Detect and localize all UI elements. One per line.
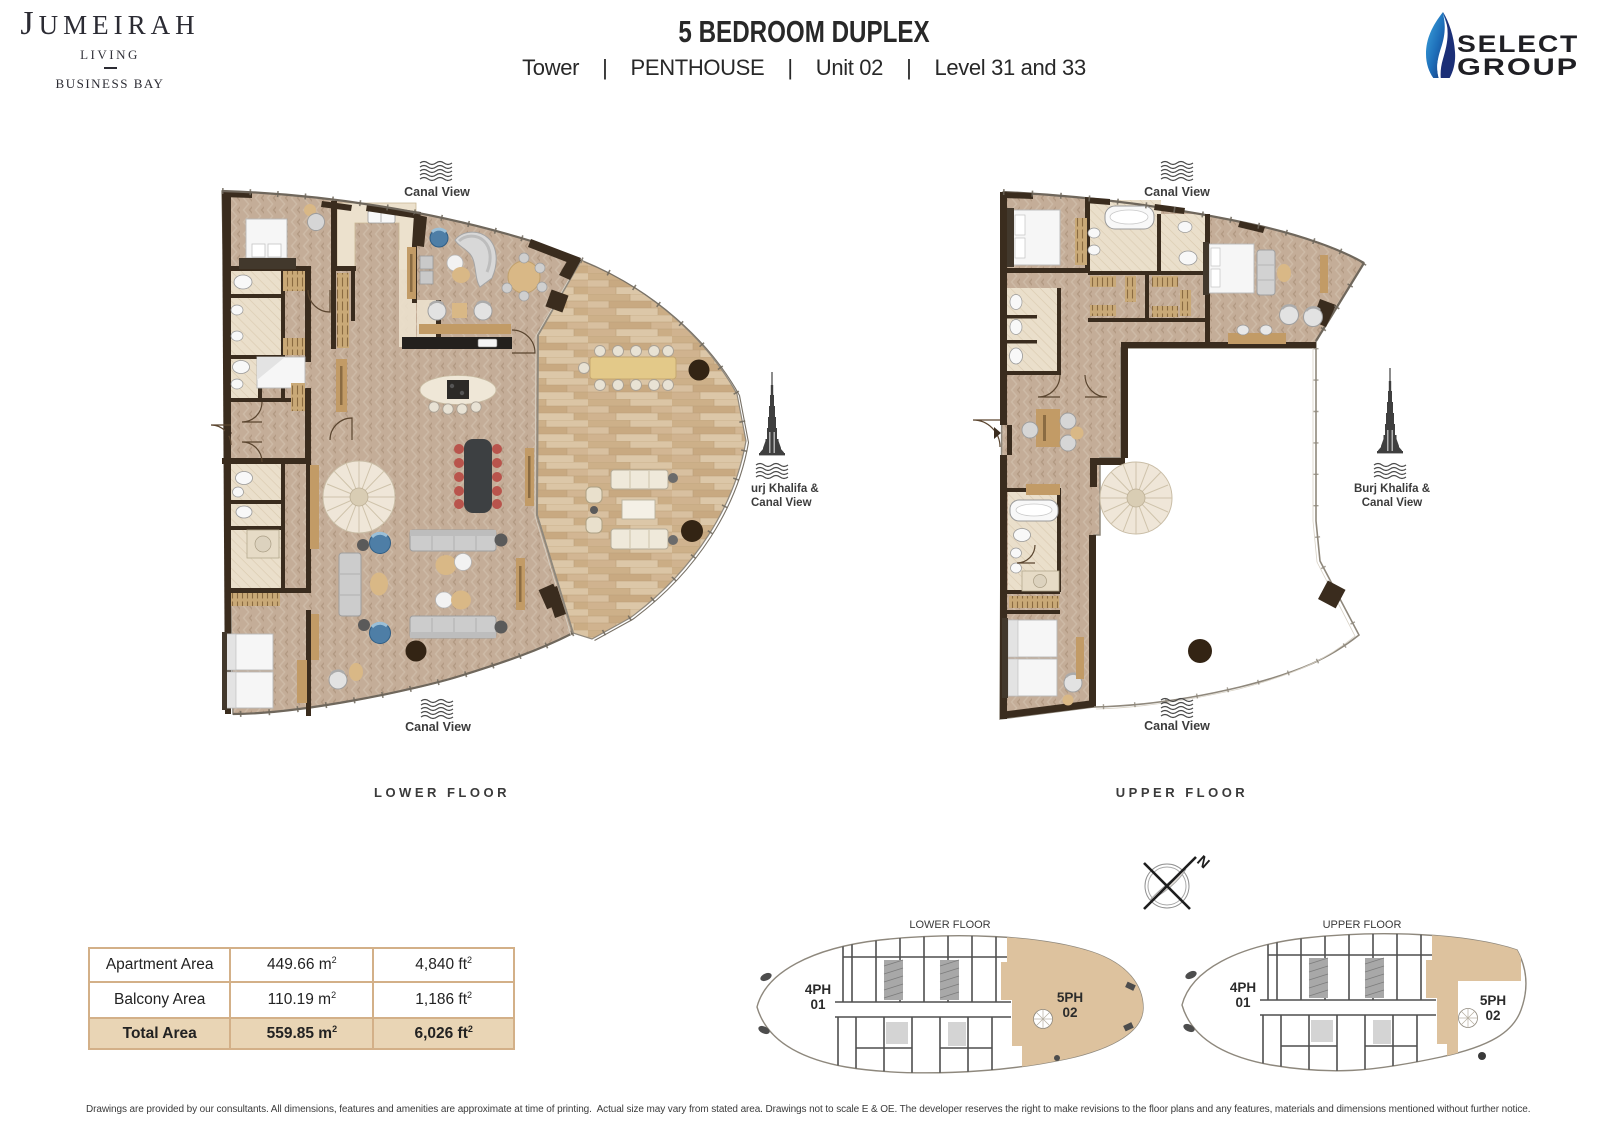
svg-text:GROUP: GROUP: [1457, 54, 1579, 78]
svg-text:01: 01: [1235, 995, 1251, 1010]
svg-text:5PH: 5PH: [1057, 990, 1083, 1005]
svg-text:Canal View: Canal View: [751, 497, 812, 509]
svg-text:urj Khalifa &: urj Khalifa &: [751, 483, 819, 495]
svg-text:Canal View: Canal View: [1144, 185, 1210, 199]
svg-text:Canal View: Canal View: [404, 185, 470, 199]
svg-text:02: 02: [1062, 1005, 1077, 1020]
svg-text:Canal View: Canal View: [1362, 497, 1423, 509]
svg-text:01: 01: [810, 997, 826, 1012]
svg-text:Canal View: Canal View: [1144, 719, 1210, 733]
svg-text:02: 02: [1485, 1008, 1500, 1023]
svg-text:N: N: [1193, 852, 1212, 872]
svg-text:Burj Khalifa &: Burj Khalifa &: [1354, 483, 1430, 495]
svg-text:5PH: 5PH: [1480, 993, 1506, 1008]
svg-text:Canal View: Canal View: [405, 720, 471, 734]
svg-text:4PH: 4PH: [1230, 980, 1256, 995]
svg-text:4PH: 4PH: [805, 982, 831, 997]
